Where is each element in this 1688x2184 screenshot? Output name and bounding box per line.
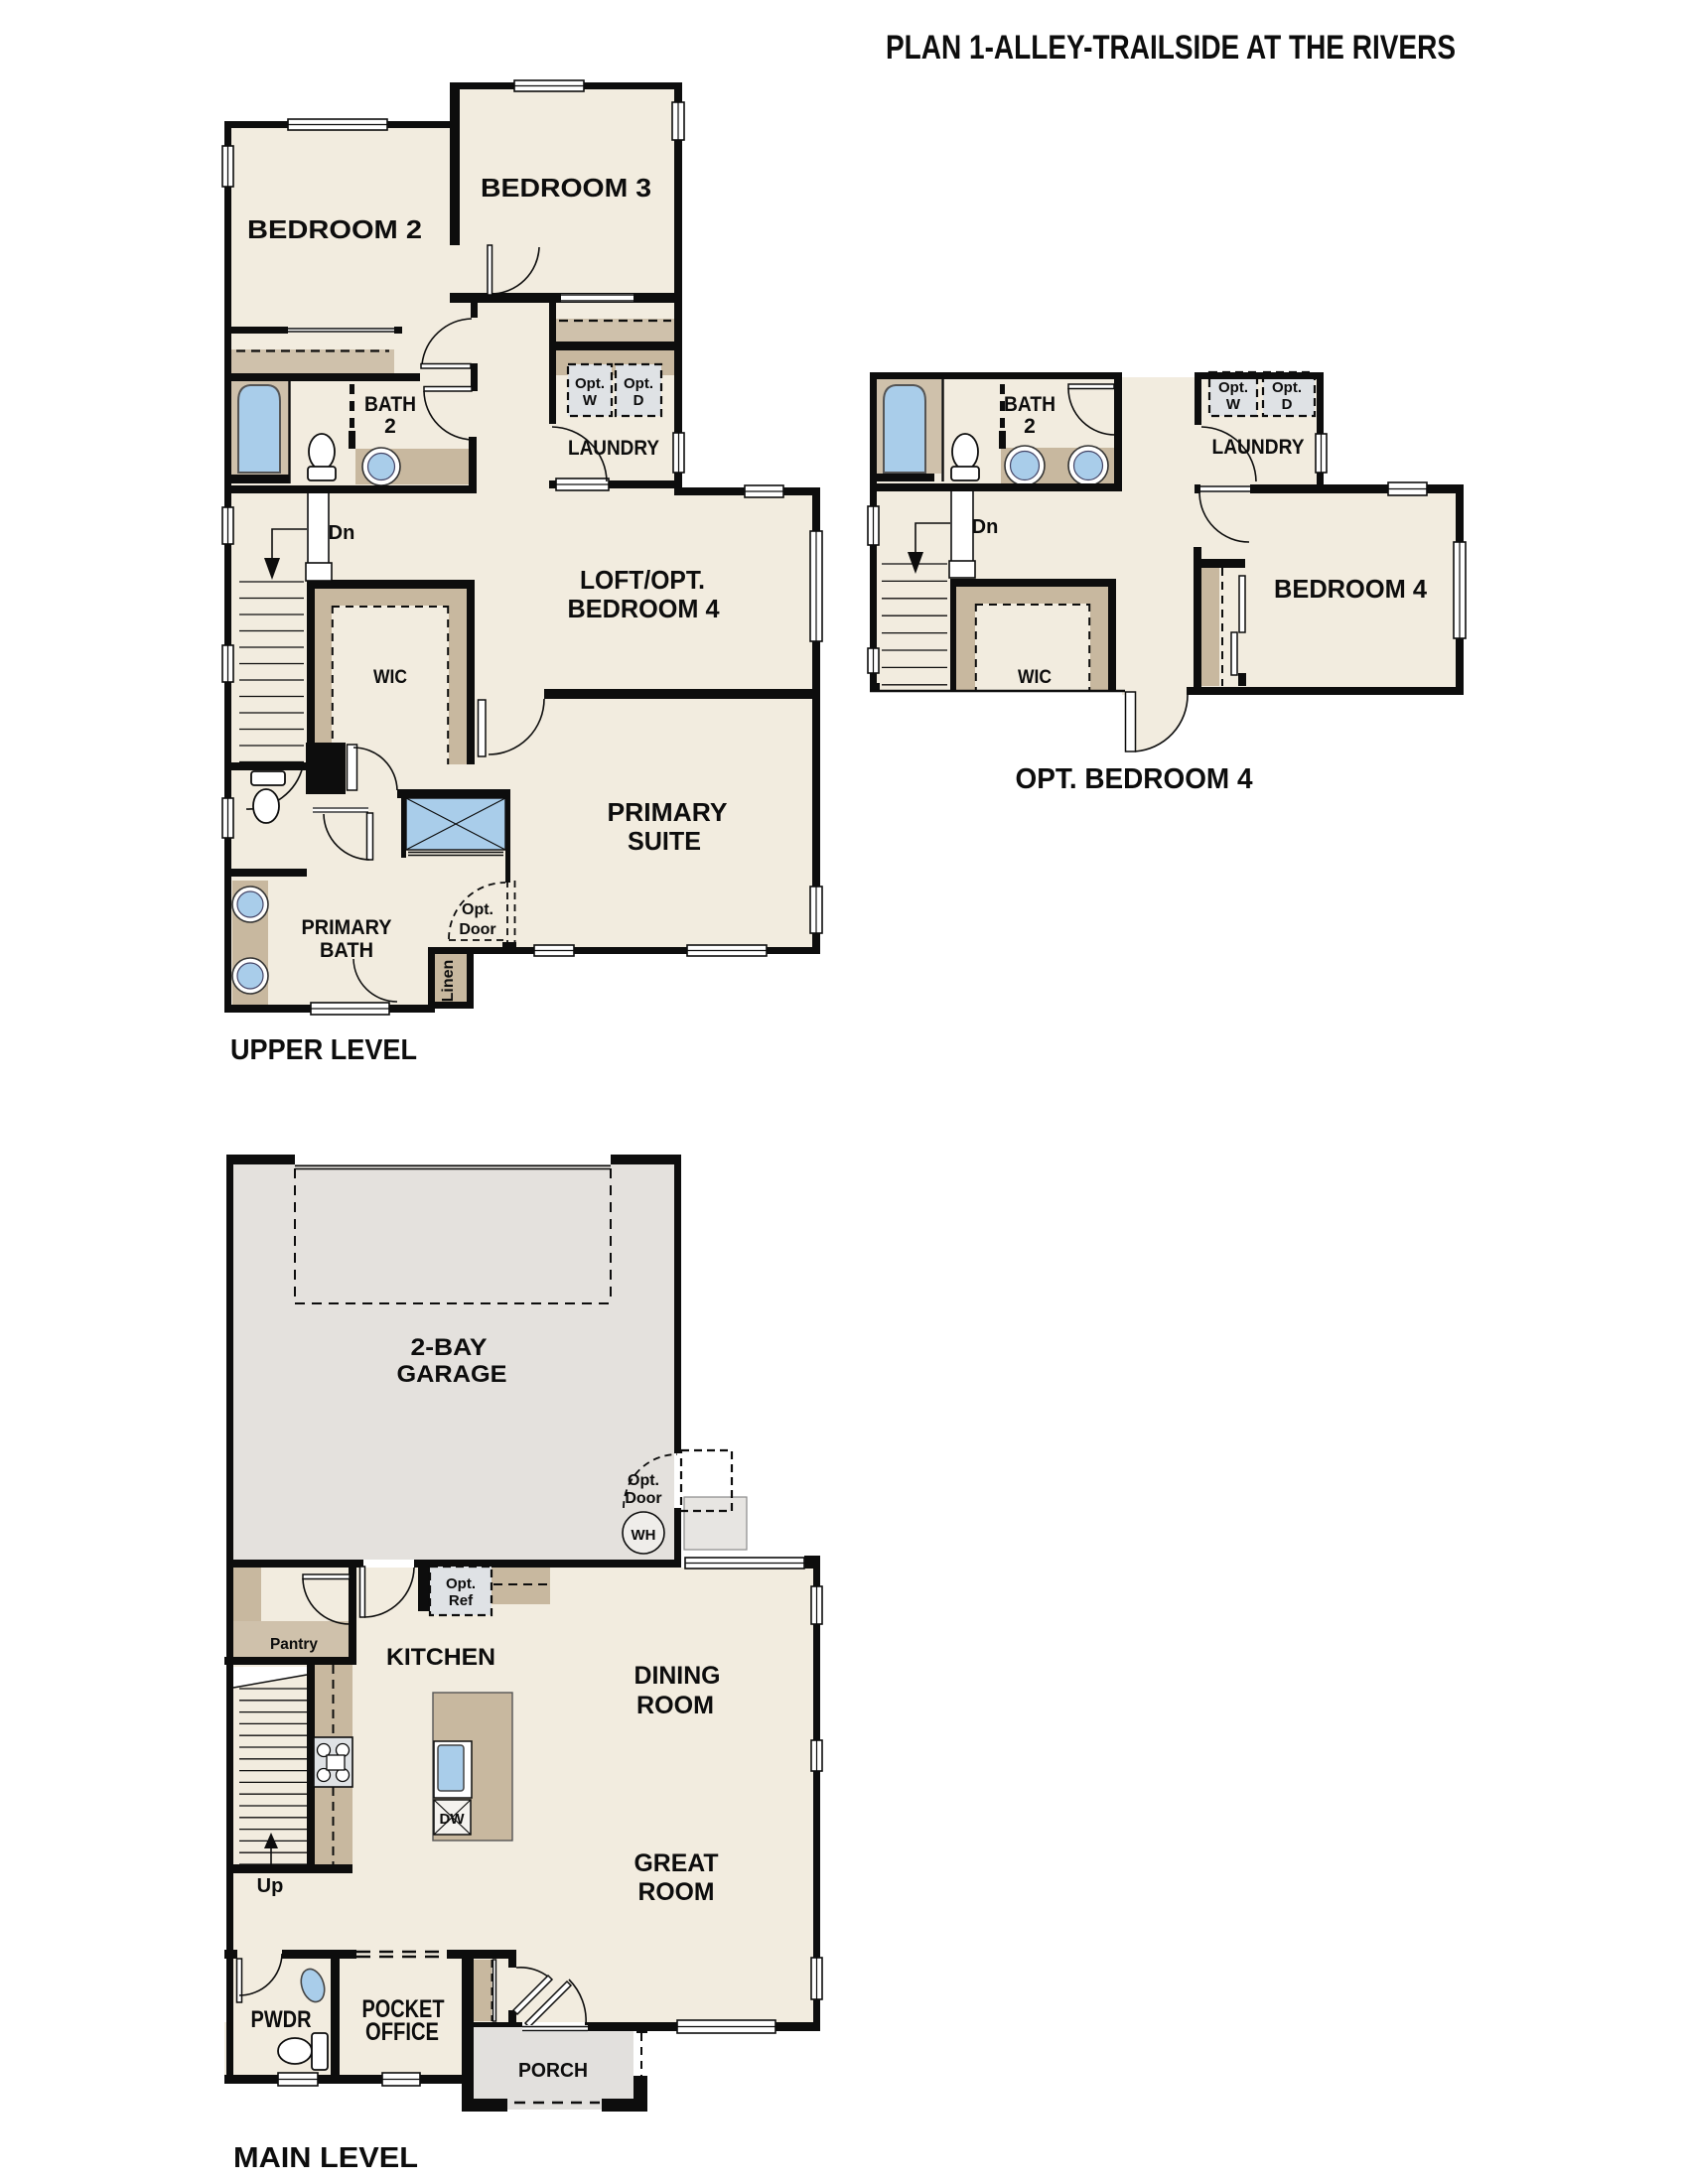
svg-text:DW: DW xyxy=(440,1811,466,1828)
svg-text:Opt.: Opt. xyxy=(462,901,493,918)
svg-text:Opt.: Opt. xyxy=(1272,379,1302,396)
svg-text:KITCHEN: KITCHEN xyxy=(386,1644,495,1671)
svg-text:BATH: BATH xyxy=(320,939,373,962)
svg-text:Opt.: Opt. xyxy=(575,375,605,392)
svg-text:Door: Door xyxy=(625,1490,661,1507)
svg-text:BEDROOM 2: BEDROOM 2 xyxy=(247,214,422,244)
svg-text:PLAN 1-ALLEY-TRAILSIDE AT THE: PLAN 1-ALLEY-TRAILSIDE AT THE RIVERS xyxy=(886,29,1456,67)
svg-text:Opt.: Opt. xyxy=(624,375,653,392)
svg-text:BATH: BATH xyxy=(364,393,416,416)
svg-text:BEDROOM 4: BEDROOM 4 xyxy=(568,594,721,623)
svg-text:Linen: Linen xyxy=(440,960,457,1003)
svg-text:Opt.: Opt. xyxy=(1218,379,1248,396)
svg-text:2-BAY: 2-BAY xyxy=(411,1334,488,1361)
svg-text:ROOM: ROOM xyxy=(636,1692,714,1719)
svg-text:OFFICE: OFFICE xyxy=(365,2018,439,2046)
svg-text:WIC: WIC xyxy=(1018,667,1052,688)
svg-text:Opt.: Opt. xyxy=(446,1575,476,1592)
svg-text:2: 2 xyxy=(384,415,396,438)
svg-text:2: 2 xyxy=(1024,415,1036,438)
svg-text:D: D xyxy=(633,392,644,409)
svg-text:D: D xyxy=(1282,396,1293,413)
svg-text:GREAT: GREAT xyxy=(634,1849,719,1877)
svg-text:PORCH: PORCH xyxy=(518,2060,588,2082)
svg-text:LOFT/OPT.: LOFT/OPT. xyxy=(580,565,705,595)
svg-text:Ref: Ref xyxy=(449,1592,474,1609)
svg-text:BATH: BATH xyxy=(1004,393,1055,416)
svg-text:UPPER LEVEL: UPPER LEVEL xyxy=(230,1034,417,1066)
svg-text:LAUNDRY: LAUNDRY xyxy=(568,437,659,460)
svg-text:MAIN LEVEL: MAIN LEVEL xyxy=(233,2142,418,2174)
svg-text:W: W xyxy=(1226,396,1241,413)
svg-text:Dn: Dn xyxy=(972,516,999,538)
svg-text:LAUNDRY: LAUNDRY xyxy=(1212,436,1305,459)
svg-text:Pantry: Pantry xyxy=(270,1636,318,1653)
svg-text:BEDROOM 3: BEDROOM 3 xyxy=(481,173,651,203)
svg-text:Door: Door xyxy=(459,921,495,938)
svg-text:GARAGE: GARAGE xyxy=(397,1361,507,1388)
svg-text:OPT. BEDROOM 4: OPT. BEDROOM 4 xyxy=(1016,763,1253,795)
svg-text:Opt.: Opt. xyxy=(628,1472,659,1489)
svg-text:PWDR: PWDR xyxy=(251,2006,312,2033)
svg-text:DINING: DINING xyxy=(634,1662,721,1690)
svg-text:BEDROOM 4: BEDROOM 4 xyxy=(1274,574,1428,604)
svg-text:Up: Up xyxy=(257,1875,284,1897)
svg-text:ROOM: ROOM xyxy=(638,1878,715,1906)
svg-text:WIC: WIC xyxy=(373,667,407,688)
svg-text:WH: WH xyxy=(632,1527,656,1544)
svg-text:SUITE: SUITE xyxy=(628,826,701,856)
svg-text:PRIMARY: PRIMARY xyxy=(302,916,392,939)
svg-text:PRIMARY: PRIMARY xyxy=(608,797,728,827)
svg-text:W: W xyxy=(583,392,598,409)
svg-text:Dn: Dn xyxy=(329,522,355,544)
